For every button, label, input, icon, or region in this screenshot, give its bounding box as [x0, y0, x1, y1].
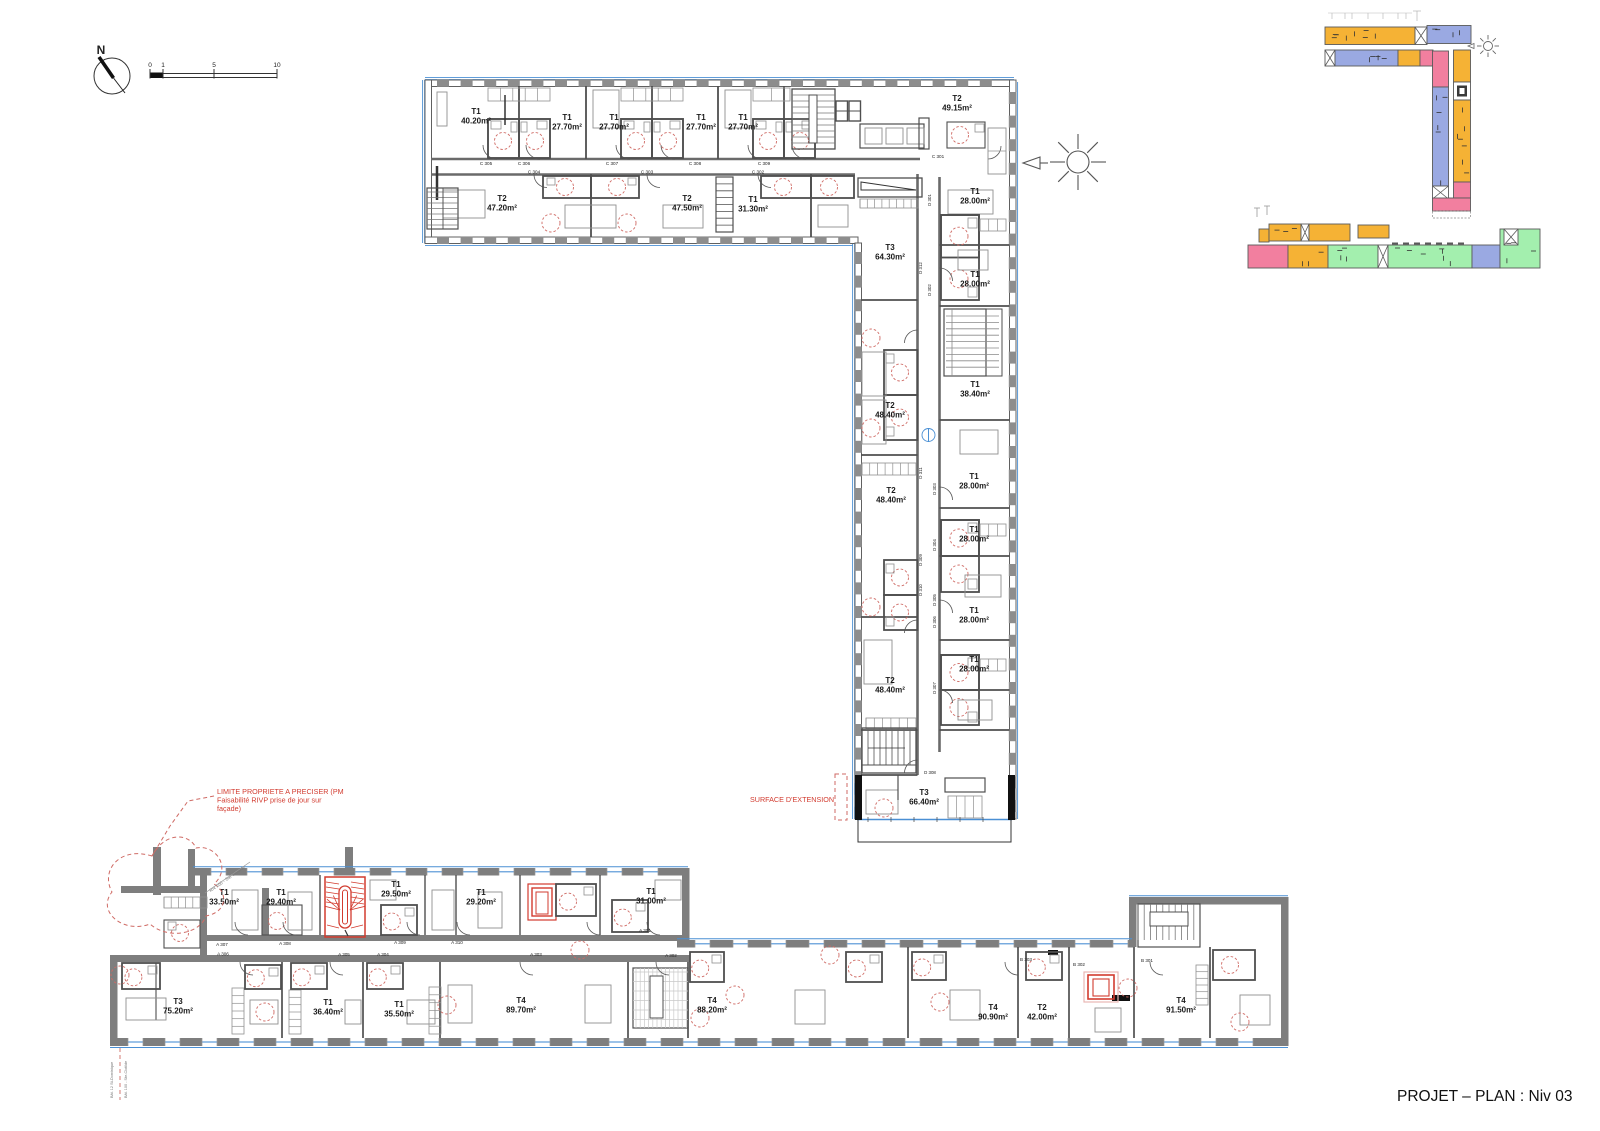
svg-text:31.00m²: 31.00m² [636, 897, 666, 906]
svg-text:T1: T1 [562, 113, 572, 122]
svg-text:T1: T1 [646, 887, 656, 896]
svg-text:A 305: A 305 [338, 952, 350, 957]
svg-text:75.20m²: 75.20m² [163, 1007, 193, 1016]
svg-text:48.40m²: 48.40m² [875, 411, 905, 420]
svg-text:C 304: C 304 [528, 170, 541, 175]
svg-text:D 305: D 305 [932, 594, 937, 606]
svg-text:C 301: C 301 [932, 154, 945, 159]
svg-text:Bât. 100 - Ste-Clotilde: Bât. 100 - Ste-Clotilde [124, 1061, 128, 1098]
svg-text:N: N [97, 43, 106, 57]
svg-text:D 306: D 306 [932, 616, 937, 628]
svg-text:T1: T1 [738, 113, 748, 122]
svg-text:D 309: D 309 [918, 554, 923, 566]
svg-text:T3: T3 [885, 243, 895, 252]
svg-text:27.70m²: 27.70m² [686, 123, 716, 132]
svg-text:T2: T2 [1037, 1003, 1047, 1012]
svg-text:A 302: A 302 [665, 953, 677, 958]
svg-text:29.50m²: 29.50m² [381, 890, 411, 899]
svg-text:D 310: D 310 [918, 584, 923, 596]
svg-text:T1: T1 [276, 888, 286, 897]
svg-text:D 303: D 303 [932, 483, 937, 495]
svg-text:PROJET – PLAN : Niv 03: PROJET – PLAN : Niv 03 [1397, 1088, 1572, 1105]
svg-text:C 305: C 305 [480, 161, 493, 166]
svg-text:28.00m²: 28.00m² [960, 197, 990, 206]
svg-text:D 302: D 302 [927, 284, 932, 296]
svg-text:C 303: C 303 [641, 170, 654, 175]
svg-text:0: 0 [148, 62, 152, 69]
svg-text:C 306: C 306 [518, 161, 531, 166]
svg-text:38.40m²: 38.40m² [960, 390, 990, 399]
svg-text:27.70m²: 27.70m² [552, 123, 582, 132]
svg-text:1: 1 [161, 62, 165, 69]
svg-text:29.20m²: 29.20m² [466, 898, 496, 907]
svg-text:47.50m²: 47.50m² [672, 204, 702, 213]
svg-text:C 302: C 302 [752, 170, 765, 175]
svg-text:28.00m²: 28.00m² [959, 616, 989, 625]
svg-text:10: 10 [273, 62, 281, 69]
svg-text:A 303: A 303 [530, 952, 542, 957]
svg-text:T2: T2 [886, 486, 896, 495]
svg-text:35.50m²: 35.50m² [384, 1010, 414, 1019]
svg-text:T1: T1 [969, 606, 979, 615]
svg-text:T2: T2 [682, 194, 692, 203]
svg-text:88.20m²: 88.20m² [697, 1006, 727, 1015]
svg-text:T1: T1 [394, 1000, 404, 1009]
svg-text:D 311: D 311 [918, 467, 923, 479]
svg-text:C 309: C 309 [758, 161, 771, 166]
svg-text:28.00m²: 28.00m² [959, 665, 989, 674]
svg-text:T1: T1 [323, 998, 333, 1007]
svg-text:T4: T4 [1176, 996, 1186, 1005]
svg-text:SURFACE D'EXTENSION: SURFACE D'EXTENSION [750, 795, 834, 804]
svg-text:D 307: D 307 [932, 682, 937, 694]
svg-text:T4: T4 [707, 996, 717, 1005]
svg-text:A 307: A 307 [216, 942, 228, 947]
svg-text:T1: T1 [476, 888, 486, 897]
svg-text:28.00m²: 28.00m² [959, 482, 989, 491]
svg-text:T3: T3 [919, 788, 929, 797]
svg-text:36.40m²: 36.40m² [313, 1008, 343, 1017]
svg-text:T2: T2 [497, 194, 507, 203]
svg-text:D 308: D 308 [924, 770, 936, 775]
svg-text:B 301: B 301 [1141, 958, 1153, 963]
svg-text:27.70m²: 27.70m² [599, 123, 629, 132]
svg-text:T3: T3 [173, 997, 183, 1006]
svg-text:90.90m²: 90.90m² [978, 1013, 1008, 1022]
svg-text:47.20m²: 47.20m² [487, 204, 517, 213]
svg-text:T2: T2 [885, 401, 895, 410]
svg-text:66.40m²: 66.40m² [909, 798, 939, 807]
svg-text:T1: T1 [391, 880, 401, 889]
svg-text:40.20m²: 40.20m² [461, 117, 491, 126]
svg-text:A 310: A 310 [451, 940, 463, 945]
svg-text:89.70m²: 89.70m² [506, 1006, 536, 1015]
svg-text:28.00m²: 28.00m² [959, 535, 989, 544]
svg-text:T1: T1 [471, 107, 481, 116]
svg-text:28.00m²: 28.00m² [960, 280, 990, 289]
svg-text:42.00m²: 42.00m² [1027, 1013, 1057, 1022]
svg-text:T1: T1 [969, 655, 979, 664]
svg-text:49.15m²: 49.15m² [942, 104, 972, 113]
svg-text:T1: T1 [748, 195, 758, 204]
svg-text:T1: T1 [970, 380, 980, 389]
svg-text:façade): façade) [217, 804, 241, 813]
svg-text:T4: T4 [516, 996, 526, 1005]
svg-text:27.70m²: 27.70m² [728, 123, 758, 132]
svg-text:T1: T1 [970, 187, 980, 196]
svg-text:T1: T1 [696, 113, 706, 122]
svg-text:T2: T2 [952, 94, 962, 103]
svg-text:A 309: A 309 [394, 940, 406, 945]
svg-text:C 308: C 308 [689, 161, 702, 166]
svg-text:B 303: B 303 [1020, 957, 1032, 962]
svg-text:A 308: A 308 [279, 941, 291, 946]
svg-text:A 301: A 301 [639, 928, 651, 933]
svg-text:T1: T1 [969, 525, 979, 534]
svg-text:T1: T1 [970, 270, 980, 279]
svg-text:Bât. 12 St-Dominique: Bât. 12 St-Dominique [110, 1062, 114, 1098]
svg-text:31.30m²: 31.30m² [738, 205, 768, 214]
svg-text:T1: T1 [969, 472, 979, 481]
svg-text:B 302: B 302 [1073, 962, 1085, 967]
svg-text:64.30m²: 64.30m² [875, 253, 905, 262]
svg-text:T1: T1 [609, 113, 619, 122]
svg-text:29.40m²: 29.40m² [266, 898, 296, 907]
svg-text:48.40m²: 48.40m² [875, 686, 905, 695]
svg-text:D 312: D 312 [918, 262, 923, 274]
svg-text:48.40m²: 48.40m² [876, 496, 906, 505]
svg-text:A 306: A 306 [217, 952, 229, 957]
svg-text:C 307: C 307 [606, 161, 619, 166]
svg-text:D 301: D 301 [927, 194, 932, 206]
svg-text:T2: T2 [885, 676, 895, 685]
svg-text:91.50m²: 91.50m² [1166, 1006, 1196, 1015]
svg-text:33.50m²: 33.50m² [209, 898, 239, 907]
svg-text:T1: T1 [219, 888, 229, 897]
svg-text:5: 5 [212, 62, 216, 69]
svg-text:T4: T4 [988, 1003, 998, 1012]
svg-text:D 304: D 304 [932, 539, 937, 551]
svg-text:A 304: A 304 [377, 952, 389, 957]
